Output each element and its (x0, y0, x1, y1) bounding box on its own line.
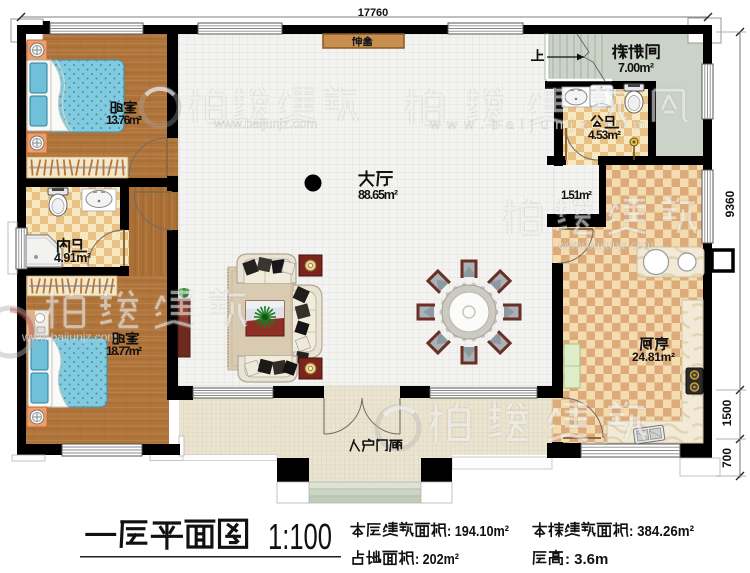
svg-text:4.91m²: 4.91m² (54, 251, 91, 265)
svg-text:17760: 17760 (358, 7, 389, 19)
svg-text:www.baijunjz.com: www.baijunjz.com (21, 330, 117, 344)
svg-text:www.baijunjz.com: www.baijunjz.com (557, 238, 653, 252)
svg-text:: 384.26m²: : 384.26m² (629, 523, 694, 540)
svg-text:1500: 1500 (720, 399, 734, 426)
svg-text:13.76m²: 13.76m² (106, 113, 142, 127)
svg-text:88.65m²: 88.65m² (358, 188, 398, 202)
svg-text:: 3.6m: : 3.6m (565, 551, 608, 568)
svg-text:7.00m²: 7.00m² (618, 61, 654, 75)
svg-text:: 202m²: : 202m² (415, 551, 459, 568)
svg-text:: 194.10m²: : 194.10m² (447, 523, 509, 540)
svg-text:1.51m²: 1.51m² (561, 190, 592, 202)
svg-text:18.77m²: 18.77m² (106, 344, 142, 358)
svg-text:www.baijunjz.com: www.baijunjz.com (213, 116, 317, 131)
svg-text:1:100: 1:100 (268, 516, 332, 557)
svg-text:24.81m²: 24.81m² (632, 350, 675, 364)
svg-text:4.53m²: 4.53m² (588, 128, 621, 142)
svg-text:700: 700 (720, 448, 734, 468)
svg-text:9360: 9360 (723, 190, 737, 217)
